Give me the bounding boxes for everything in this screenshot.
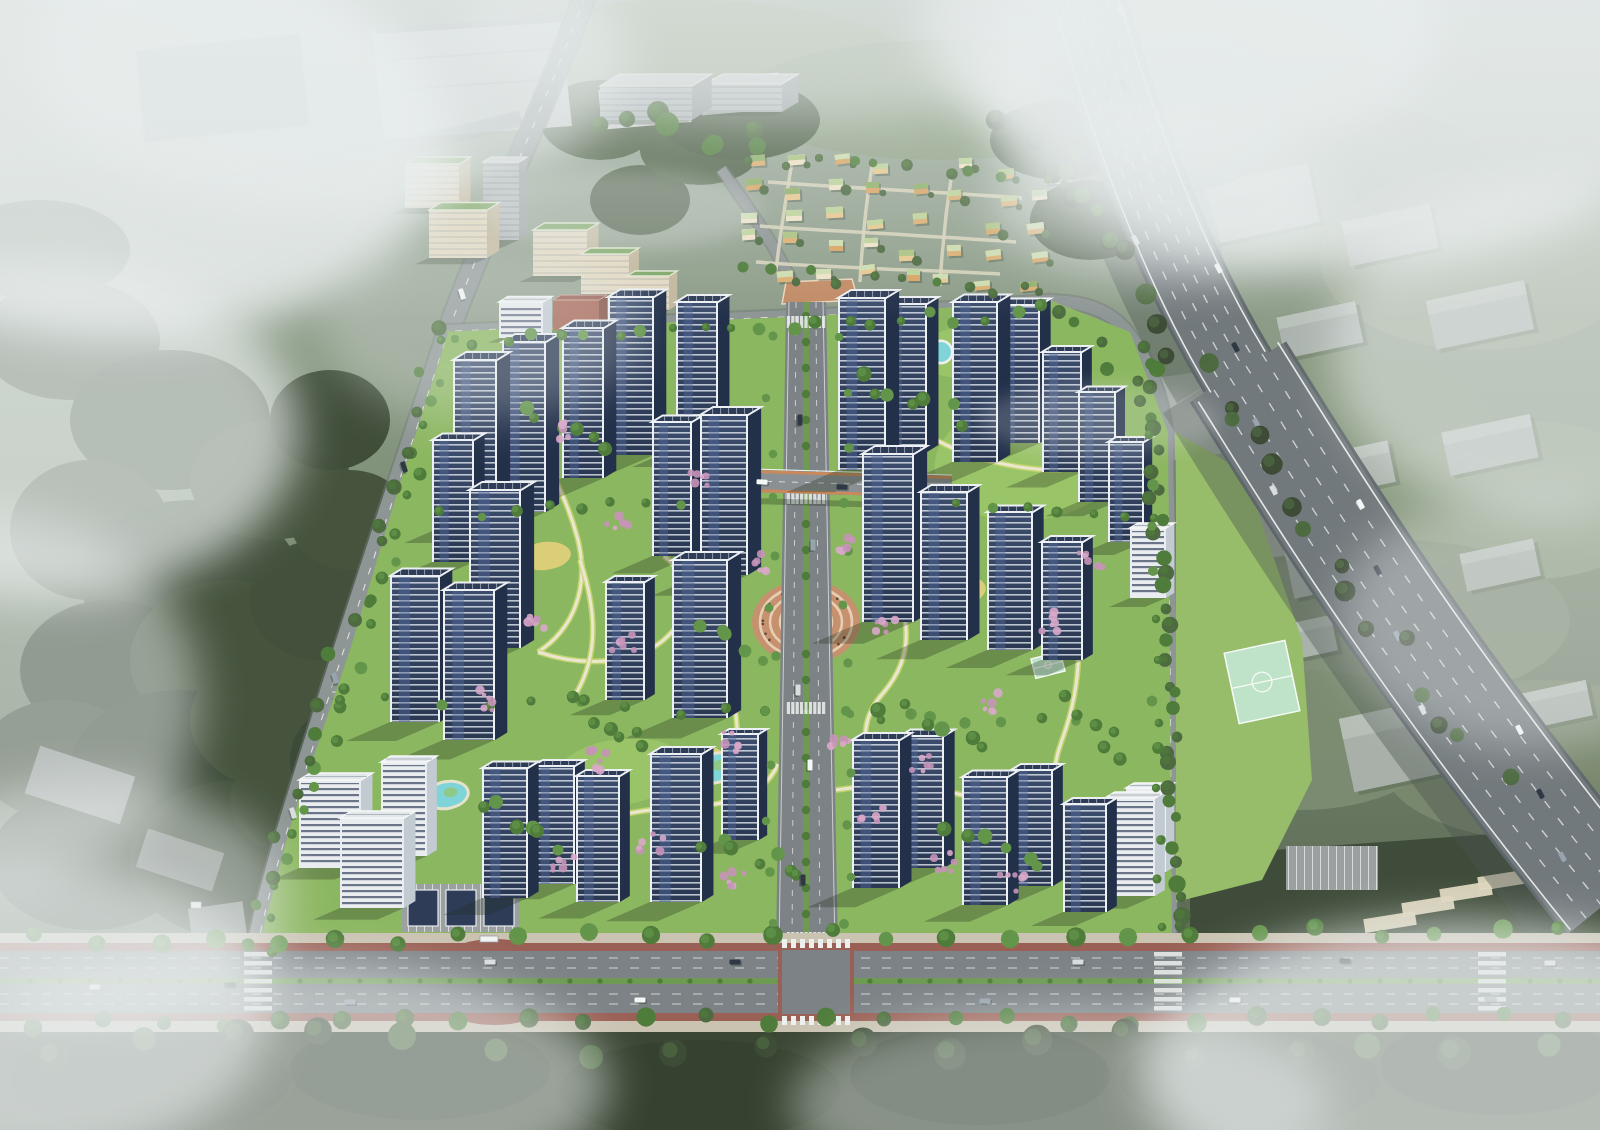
car [794, 685, 801, 698]
car [485, 960, 498, 967]
car [980, 999, 993, 1006]
car [730, 960, 743, 967]
car [756, 479, 769, 486]
car [799, 875, 806, 888]
parking-lot [1286, 846, 1378, 890]
boulevard-median [803, 302, 809, 948]
car [809, 540, 816, 553]
car [836, 484, 849, 491]
main-gate-intersection [780, 948, 852, 1016]
car [635, 998, 648, 1005]
cloud-wisp [980, 384, 1220, 456]
car [796, 415, 803, 428]
car [806, 760, 813, 773]
atmospheric-haze [0, 0, 1600, 320]
car [1073, 960, 1086, 967]
masterplan-rendering [0, 0, 1600, 1130]
bus-shelter [480, 936, 498, 942]
aerial-render [0, 0, 1600, 1130]
